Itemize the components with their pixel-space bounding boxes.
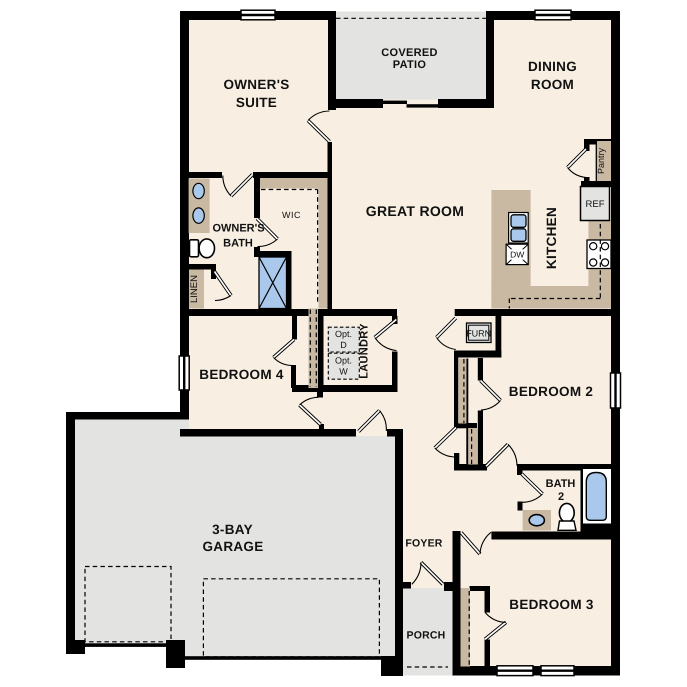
- svg-text:BEDROOM 2: BEDROOM 2: [509, 384, 593, 399]
- svg-text:WIC: WIC: [282, 210, 301, 220]
- svg-text:KITCHEN: KITCHEN: [544, 207, 559, 269]
- svg-text:3-BAY: 3-BAY: [212, 522, 253, 537]
- svg-text:ROOM: ROOM: [531, 77, 574, 92]
- svg-text:COVERED: COVERED: [381, 47, 438, 59]
- svg-text:BATH: BATH: [223, 238, 253, 250]
- svg-text:REF: REF: [586, 199, 605, 210]
- svg-text:BATH: BATH: [546, 478, 576, 490]
- svg-text:Opt.: Opt.: [335, 329, 352, 339]
- svg-text:DINING: DINING: [528, 59, 577, 74]
- svg-text:PORCH: PORCH: [407, 630, 446, 642]
- svg-text:BEDROOM 4: BEDROOM 4: [199, 367, 284, 382]
- svg-text:Pantry: Pantry: [596, 147, 606, 174]
- svg-text:LINEN: LINEN: [189, 275, 200, 303]
- svg-text:SUITE: SUITE: [236, 95, 277, 110]
- svg-text:GARAGE: GARAGE: [202, 539, 263, 554]
- svg-text:PATIO: PATIO: [393, 59, 427, 71]
- svg-text:LAUNDRY: LAUNDRY: [359, 323, 371, 379]
- svg-text:Opt.: Opt.: [335, 356, 352, 366]
- svg-text:FURN: FURN: [466, 329, 491, 339]
- svg-text:2: 2: [558, 491, 564, 503]
- svg-text:DW: DW: [510, 250, 524, 260]
- svg-text:D: D: [340, 340, 347, 350]
- svg-text:FOYER: FOYER: [405, 538, 442, 550]
- svg-text:GREAT ROOM: GREAT ROOM: [366, 203, 464, 219]
- svg-text:W: W: [339, 367, 348, 377]
- svg-text:BEDROOM 3: BEDROOM 3: [509, 597, 594, 612]
- svg-text:OWNER'S: OWNER'S: [223, 77, 289, 92]
- svg-text:OWNER'S: OWNER'S: [212, 223, 264, 235]
